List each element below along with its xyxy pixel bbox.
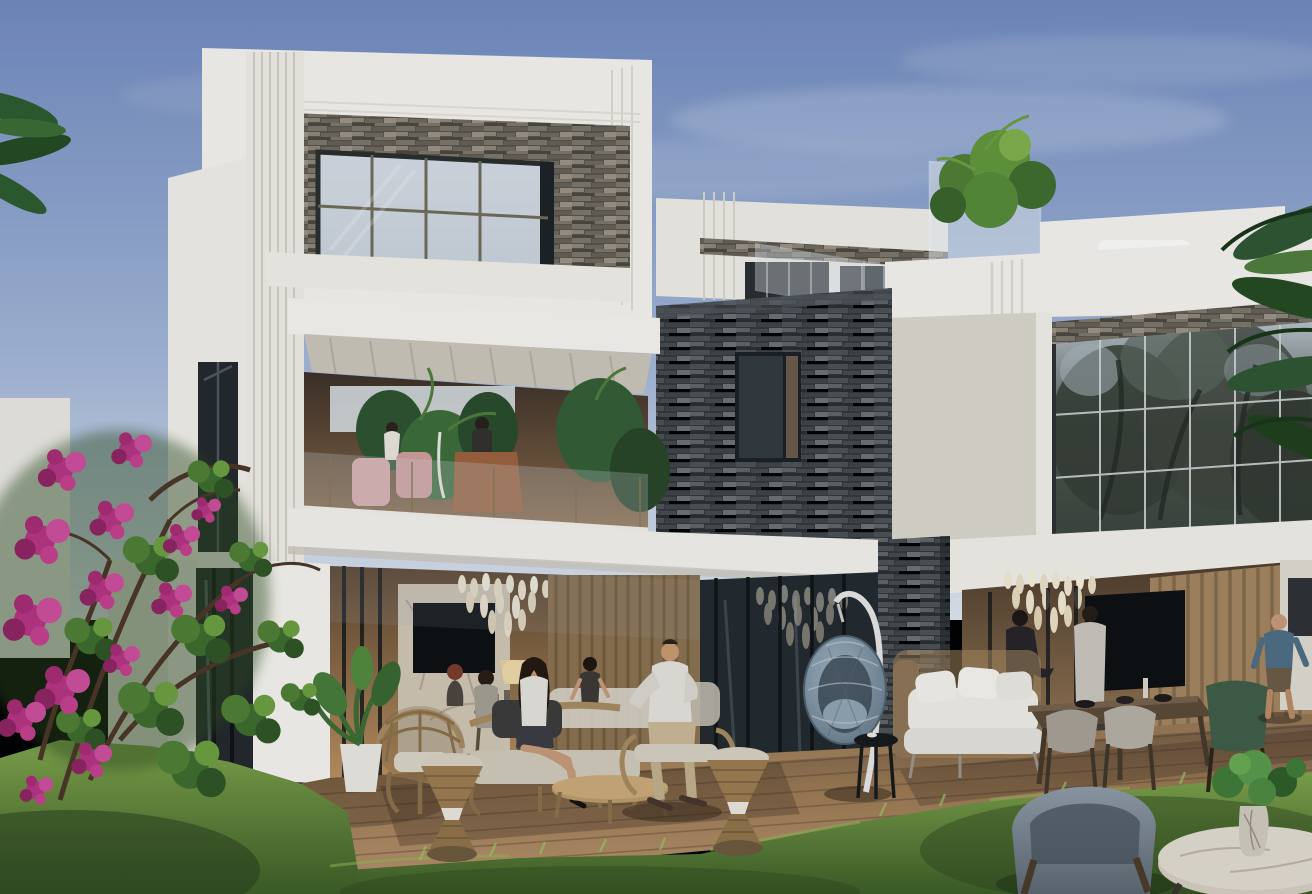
- render-canvas: [0, 0, 1312, 894]
- architectural-render: [0, 0, 1312, 894]
- vignette-overlay: [0, 0, 1312, 894]
